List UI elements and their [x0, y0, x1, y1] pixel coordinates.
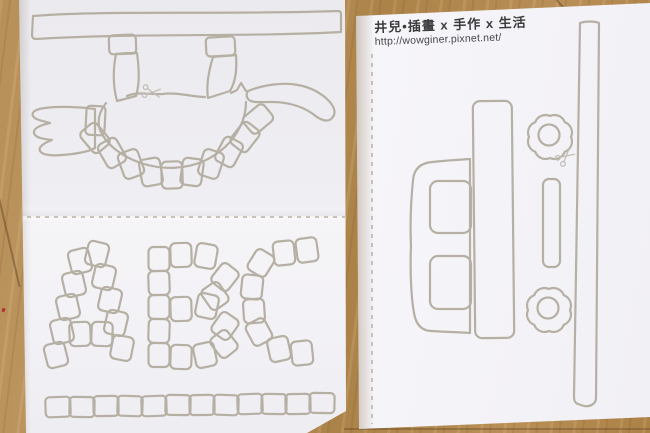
cab-window-notch [430, 181, 471, 233]
wheel-hub-outline [538, 298, 559, 319]
block-outline [244, 316, 274, 347]
block-strip-row [45, 393, 335, 418]
block-outline [213, 395, 239, 416]
dinosaur-template-drawing [32, 11, 341, 189]
block-outline [149, 295, 170, 319]
ground-bar-shape [32, 11, 341, 39]
dino-foot-shape [109, 35, 137, 55]
scissors-icon [555, 146, 576, 167]
block-outline [49, 317, 75, 345]
block-outline [45, 397, 71, 418]
truck-bed-shape [473, 101, 514, 338]
letter-b-blocks [148, 242, 241, 369]
wheel-flower-outline [527, 288, 571, 332]
block-outline [272, 240, 295, 266]
block-outline [170, 297, 192, 322]
road-bar-shape [574, 22, 599, 407]
dino-neck-head-shape [247, 84, 335, 121]
dino-foot-shape [206, 36, 236, 56]
block-outline [43, 341, 69, 369]
block-outline [149, 343, 170, 367]
block-outline [285, 394, 310, 414]
wheel-hub-outline [539, 125, 560, 146]
block-outline [117, 396, 143, 417]
block-outline [170, 345, 192, 370]
block-outline [194, 242, 219, 269]
wheel-flower-outline [528, 115, 572, 159]
block-outline [237, 394, 263, 415]
letter-c-blocks [240, 237, 319, 366]
block-outline [192, 341, 218, 369]
truck-template-drawing [411, 22, 599, 407]
flower-wheels [527, 115, 572, 332]
block-outline [93, 396, 118, 416]
block-outline [290, 340, 313, 366]
block-outline [149, 247, 170, 271]
abc-blocks-drawing [43, 237, 335, 418]
cut-guide-curve [127, 93, 205, 97]
block-outline [69, 397, 94, 417]
block-outline [148, 319, 170, 344]
block-outline [194, 292, 220, 320]
block-outline [148, 271, 170, 296]
cab-lower-notch [430, 256, 471, 309]
block-outline [295, 237, 319, 264]
template-outline-drawings [0, 0, 650, 433]
block-outline [261, 394, 286, 414]
truck-cab-shape [411, 159, 470, 333]
letter-a-blocks [43, 240, 135, 369]
scissors-icon [142, 85, 161, 100]
block-outline [170, 243, 192, 268]
block-outline [213, 135, 244, 169]
block-outline [165, 395, 190, 415]
block-outline [189, 395, 214, 415]
block-outline [161, 161, 183, 189]
dino-back-plates [78, 102, 275, 189]
photo-of-craft-templates: 井兒•插畫 x 手作 x 生活 http://wowginer.pixnet.n… [0, 0, 650, 433]
block-outline [240, 274, 263, 300]
truck-chassis-shape [543, 179, 560, 267]
block-outline [141, 396, 167, 417]
block-outline [266, 335, 292, 363]
block-outline [309, 393, 334, 413]
